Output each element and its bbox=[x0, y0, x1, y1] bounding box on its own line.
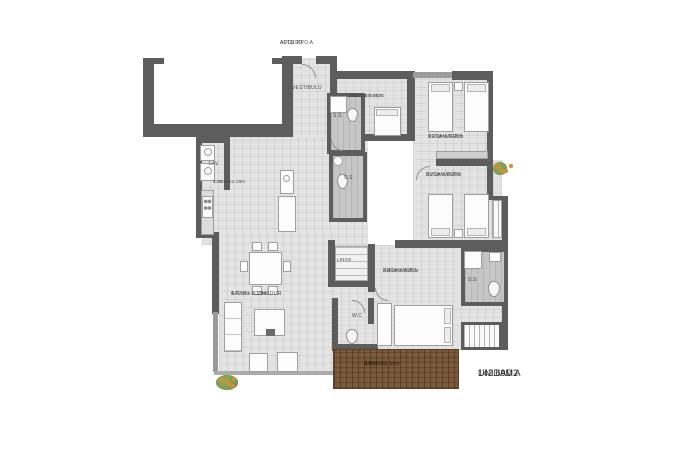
wall-bedroom3-bedroom2-divider bbox=[436, 159, 493, 166]
kitchen-sink-unit bbox=[280, 170, 294, 194]
room-dims: 3.70m x 3.28m bbox=[428, 134, 464, 141]
closet-bedroom1 bbox=[461, 322, 502, 350]
unit-area: 142.69M2 bbox=[478, 367, 518, 379]
armchair bbox=[249, 353, 268, 372]
armchair bbox=[277, 352, 298, 372]
bedroom3-nightstand bbox=[454, 82, 463, 91]
room-dims: 1.45m x 2.40m bbox=[350, 93, 382, 99]
closet-bedroom2 bbox=[492, 200, 502, 238]
dryer-door bbox=[204, 167, 212, 175]
room-dims: 3.70m x 3.28m bbox=[426, 172, 462, 179]
wall-linen-bottom bbox=[328, 281, 375, 287]
sink-bedroom1-bath bbox=[489, 252, 501, 262]
bedroom2-bed-2-pillow bbox=[467, 228, 486, 236]
kitchen-sink-bowl bbox=[283, 175, 290, 182]
room-name: W.C bbox=[352, 313, 362, 320]
room-dims: 4.72m x 6.15m bbox=[231, 291, 267, 298]
floor-plan-canvas: ACCESO APTO TIPO A VESTIBULO REC SERVICI… bbox=[0, 0, 700, 452]
bedroom1-pillow bbox=[444, 327, 451, 343]
service-bed-pillow bbox=[376, 109, 398, 116]
room-name: LINOS bbox=[337, 257, 352, 263]
wall-core-right bbox=[282, 58, 293, 137]
wall-core-cap-left bbox=[143, 58, 164, 64]
room-name: VESTIBULO bbox=[292, 85, 322, 92]
dining-chair bbox=[268, 242, 278, 251]
planter-bottom bbox=[216, 373, 334, 391]
linen-closet bbox=[335, 246, 368, 281]
laptop bbox=[266, 329, 275, 336]
plant bbox=[493, 162, 507, 175]
room-dims: 3.40m x 3.36m bbox=[383, 268, 419, 275]
sink-lower bbox=[333, 156, 343, 166]
kitchen-stove bbox=[202, 196, 213, 218]
plant bbox=[216, 375, 238, 390]
planter-right bbox=[492, 162, 507, 196]
dining-table bbox=[249, 252, 282, 285]
window-bedroom3-top bbox=[413, 72, 455, 78]
room-name: S.S bbox=[344, 175, 353, 182]
shower-bedroom1-bath bbox=[464, 251, 482, 269]
wall-living-left bbox=[212, 232, 219, 314]
room-dims: 1.70m x 2.29m bbox=[213, 179, 245, 185]
wall-wc-right bbox=[368, 298, 374, 324]
access-line2: APTO TIPO A bbox=[280, 40, 313, 47]
room-name: S.S bbox=[333, 113, 342, 120]
bedroom2-bed-1-pillow bbox=[431, 228, 450, 236]
wall-entry-left bbox=[282, 56, 302, 64]
sliding-closet-bedroom3 bbox=[436, 151, 488, 159]
washer-door bbox=[204, 148, 212, 156]
dining-chair bbox=[252, 242, 262, 251]
wall-service-top bbox=[337, 71, 415, 79]
bedroom2-nightstand bbox=[454, 229, 463, 238]
room-name: S.S bbox=[468, 277, 477, 284]
wall-bedroom2-bottom bbox=[395, 240, 508, 248]
shower-upper bbox=[330, 96, 347, 113]
bedroom1-wardrobe bbox=[377, 303, 392, 346]
wall-wc-left bbox=[332, 298, 338, 350]
wall-core-bottom bbox=[143, 124, 293, 137]
bedroom3-bed-1-pillow bbox=[431, 84, 450, 92]
dining-chair bbox=[283, 261, 291, 272]
dining-chair bbox=[240, 261, 248, 272]
balcony-deck bbox=[333, 349, 459, 389]
wall-service-right bbox=[407, 71, 415, 141]
room-name: LAV bbox=[209, 161, 219, 168]
bedroom1-pillow bbox=[444, 308, 451, 324]
window-living-left bbox=[213, 312, 218, 372]
room-dims: 3.40m x 1.50m bbox=[364, 361, 400, 368]
wall-linen-left bbox=[328, 240, 335, 287]
bedroom3-bed-2-pillow bbox=[467, 84, 486, 92]
kitchen-island bbox=[278, 196, 296, 232]
sofa bbox=[224, 302, 242, 352]
